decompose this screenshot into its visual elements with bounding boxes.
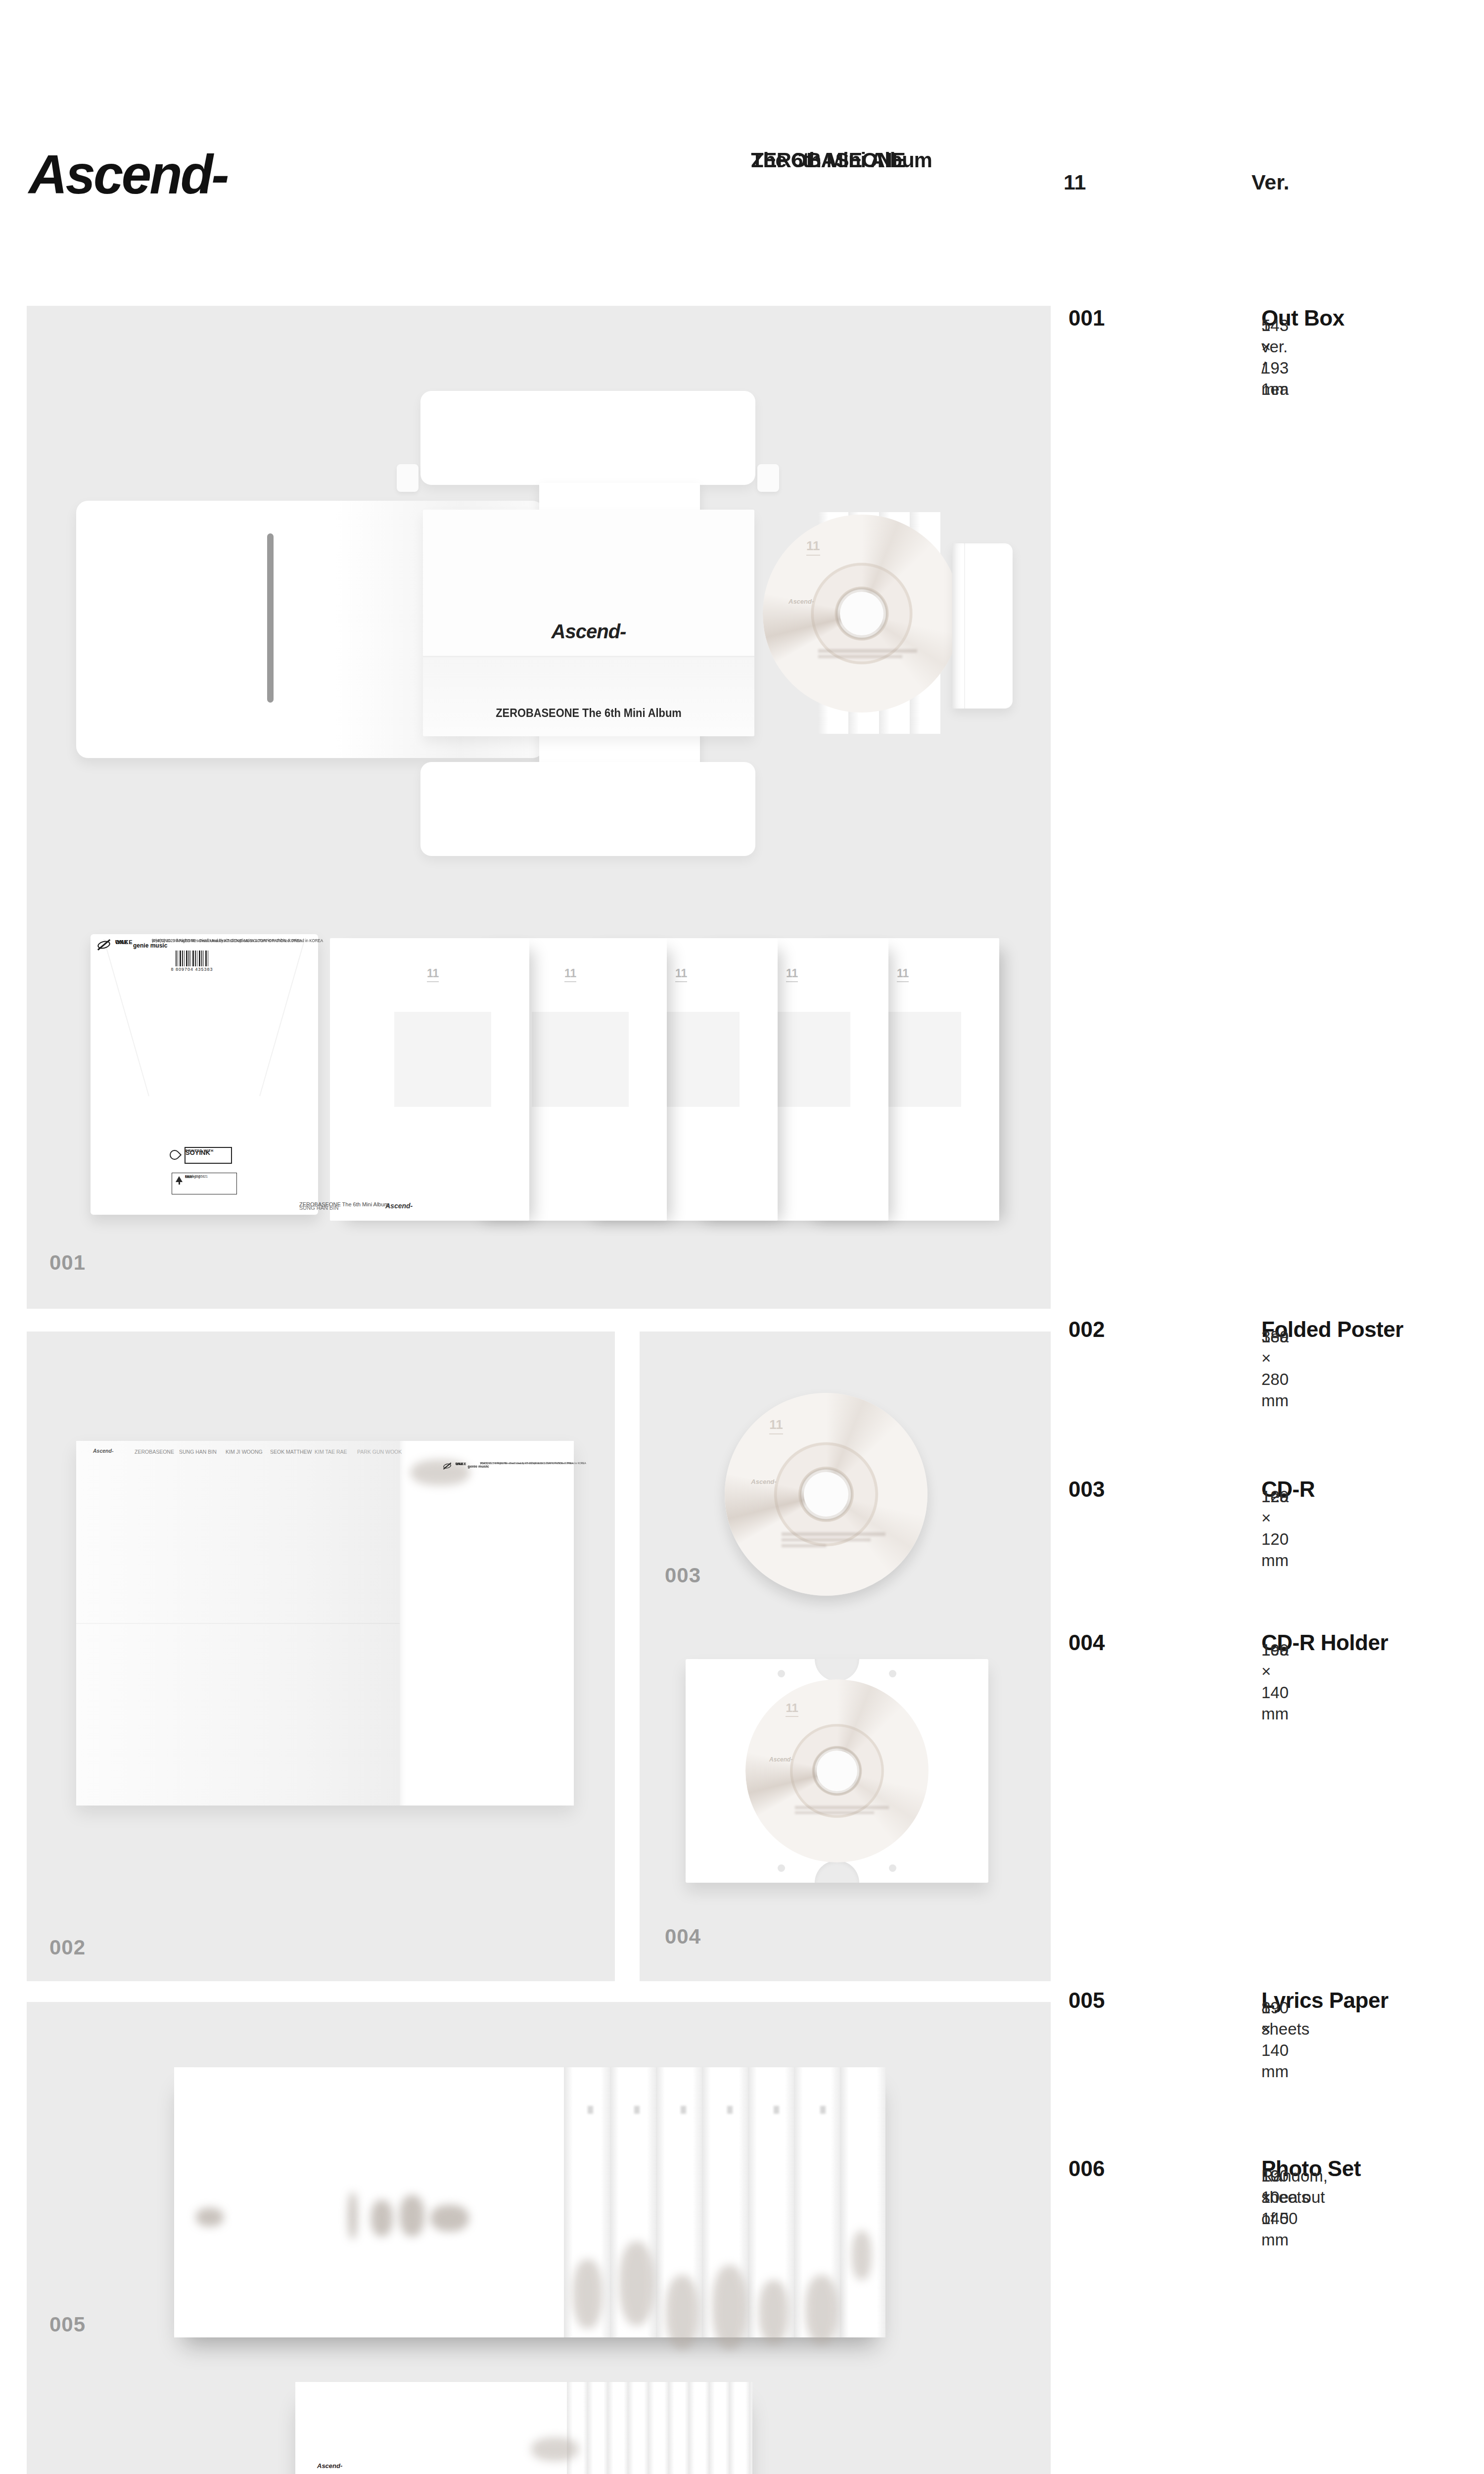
item-note: Random, 10ea out of 50 <box>1261 2165 1328 2229</box>
cover-photo-placeholder <box>394 1012 491 1107</box>
cd-disc-in-holder: 11 Ascend- <box>745 1679 928 1862</box>
poster-imprint: WAKE ONE genie music (P)&(C) 2025 WAKEON… <box>443 1461 597 1485</box>
fold-crease <box>103 939 149 1096</box>
disc-hole <box>817 1751 857 1791</box>
panel-folded-poster: Ascend- ZEROBASEONE SUNG HAN BIN KIM JI … <box>27 1332 615 1981</box>
poster-credit: SEOK MATTHEW <box>270 1449 312 1455</box>
disc-hole <box>804 1472 848 1517</box>
sheet-mark <box>820 2106 826 2114</box>
holder-notch <box>815 1860 859 1883</box>
album-title: The 6th Mini Album <box>751 148 932 171</box>
item-number: 004 <box>1068 1630 1105 1655</box>
disc-print-smudge <box>818 655 902 658</box>
disc-print-smudge <box>795 1811 874 1814</box>
sheet-mark <box>727 2106 733 2114</box>
panel-label: 005 <box>49 2313 86 2336</box>
item-number: 003 <box>1068 1477 1105 1502</box>
box-bottom-flap <box>420 762 755 856</box>
lyrics-smudge <box>400 2195 424 2236</box>
lyrics-smudge <box>196 2208 224 2227</box>
barcode <box>176 951 208 966</box>
poster-right-half <box>400 1441 574 1806</box>
lyrics-smudge <box>371 2200 393 2236</box>
fold-crease <box>259 939 305 1096</box>
folded-poster: Ascend- ZEROBASEONE SUNG HAN BIN KIM JI … <box>76 1441 574 1806</box>
fsc-tree-icon <box>179 1182 180 1185</box>
lyrics-smudge <box>430 2205 469 2232</box>
copyright-line: WARNING : All Rights Reserved. Unauthori… <box>480 1462 586 1465</box>
disc-logo-text: Ascend- <box>751 1478 776 1485</box>
item-qty: 5 ver. / 1ea <box>1261 315 1289 400</box>
cover-version-mark: 11 <box>564 967 576 982</box>
cover-brand-logo: Ascend- <box>385 1202 413 1210</box>
soyink-text: SOYINK <box>185 1149 210 1156</box>
photo-brand-logo: Ascend- <box>317 2462 342 2470</box>
box-tab <box>757 464 779 492</box>
box-tab <box>397 464 418 492</box>
cover-subtitle: ZEROBASEONE The 6th Mini Album <box>431 707 746 720</box>
lyrics-front-sheet <box>174 2067 564 2337</box>
panel-cdr: 11 Ascend- 003 11 Ascend- 004 <box>640 1332 1051 1981</box>
zerobaseone-symbol-icon <box>443 1463 452 1469</box>
box-back-card: WAKE ONE genie music (P)&(C) 2025 WAKEON… <box>91 934 318 1215</box>
item-qty: 1ea <box>1261 1639 1289 1661</box>
version-cover-card: 11 Ascend- ZEROBASEONE The 6th Mini Albu… <box>330 938 529 1221</box>
wakeone-logo-line: ONE <box>115 940 128 945</box>
disc-print-smudge <box>795 1806 889 1809</box>
holder-dot <box>778 1670 785 1677</box>
lyrics-smudge <box>573 2259 603 2329</box>
disc-version-mark: 11 <box>786 1701 798 1717</box>
cd-disc-in-box: 11 Ascend- <box>763 515 961 713</box>
disc-print-smudge <box>782 1538 871 1541</box>
poster-credit: KIM TAE RAE <box>315 1449 347 1455</box>
item-qty: 1ea <box>1261 1326 1289 1347</box>
lyrics-paper-stack <box>174 2067 885 2337</box>
sheet-mark <box>634 2106 640 2114</box>
version-label: Ver. <box>1252 170 1290 194</box>
cd-disc: 11 Ascend- <box>725 1393 927 1596</box>
cover-version-mark: 11 <box>675 967 687 982</box>
disc-logo-text: Ascend- <box>769 1756 792 1763</box>
disc-print-smudge <box>818 649 917 653</box>
disc-version-mark: 11 <box>769 1417 783 1434</box>
lyrics-smudge <box>852 2231 872 2280</box>
poster-credit: PARK GUN WOOK <box>357 1449 402 1455</box>
cover-photo-placeholder <box>532 1012 629 1107</box>
soyink-drop-icon <box>168 1148 182 1162</box>
cover-title: Ascend- <box>423 620 754 643</box>
holder-dot <box>889 1864 896 1872</box>
copyright-line: WARNING : All Rights Reserved. Unauthori… <box>152 938 323 944</box>
album-spec-sheet: Ascend- ZEROBASEONE The 6th Mini Album 1… <box>0 0 1484 2474</box>
sheet-mark <box>681 2106 686 2114</box>
cover-version-mark: 11 <box>786 967 798 982</box>
panel-out-box: 11 Ascend- Ascend- ZEROBASEONE The 6th M… <box>27 306 1051 1309</box>
lyrics-smudge <box>666 2275 698 2349</box>
item-number: 002 <box>1068 1317 1105 1342</box>
poster-credit: KIM JI WOONG <box>226 1449 263 1455</box>
disc-print-smudge <box>782 1544 826 1547</box>
poster-crease <box>76 1623 400 1624</box>
panel-label: 001 <box>49 1251 86 1275</box>
photo-set-stack: Ascend- <box>295 2382 752 2474</box>
lyrics-smudge <box>759 2280 788 2344</box>
holder-notch <box>815 1659 859 1681</box>
item-number: 001 <box>1068 306 1105 331</box>
box-top-flap <box>420 391 755 485</box>
poster-credit: Ascend- <box>93 1448 113 1454</box>
lyrics-smudge <box>619 2241 654 2326</box>
lyrics-smudge <box>712 2265 747 2349</box>
disc-print-smudge <box>782 1532 885 1536</box>
item-qty: 8 sheets <box>1261 1997 1309 2040</box>
lyrics-smudge <box>805 2275 838 2344</box>
version-mark: 11 <box>1064 170 1086 194</box>
box-front-cover: Ascend- ZEROBASEONE The 6th Mini Album <box>423 510 754 736</box>
sheet-mark <box>774 2106 779 2114</box>
poster-credit: SUNG HAN BIN <box>179 1449 217 1455</box>
panel-label: 004 <box>665 1925 701 1949</box>
photo-smudge <box>531 2437 579 2461</box>
item-qty: 1ea <box>1261 1486 1289 1507</box>
photo-front <box>295 2382 567 2474</box>
panel-label: 002 <box>49 1936 86 1959</box>
holder-dot <box>889 1670 896 1677</box>
sheet-mark <box>588 2106 593 2114</box>
barcode-digits: 8 809704 435383 <box>165 967 219 972</box>
panel-label: 003 <box>665 1564 701 1587</box>
poster-credit: ZEROBASEONE <box>135 1449 174 1455</box>
item-number: 006 <box>1068 2156 1105 2181</box>
panel-lyrics-photos: 005 Ascend- 006 Ascend- Ascend- Ascend- <box>27 2002 1051 2474</box>
photo-edges <box>567 2382 752 2474</box>
cover-member-name: SUNG HAN BIN <box>299 1205 338 1211</box>
cover-version-mark: 11 <box>897 967 909 982</box>
disc-version-mark: 11 <box>806 538 820 556</box>
box-thumb-slit <box>267 533 274 703</box>
box-side-pocket <box>952 543 1013 709</box>
wakeone-logo-line: ONE <box>456 1463 464 1466</box>
brand-logo: Ascend- <box>29 143 227 206</box>
soyink-badge: PRINTED WITH SOYINK <box>185 1147 232 1164</box>
cover-version-mark: 11 <box>427 967 439 982</box>
fsc-text: FSC® C155821 <box>185 1175 208 1178</box>
holder-dot <box>778 1864 785 1872</box>
disc-logo-text: Ascend- <box>788 598 814 605</box>
lyrics-smudge <box>348 2192 357 2239</box>
zerobaseone-symbol-icon <box>97 940 111 950</box>
disc-hole <box>840 592 883 635</box>
cdr-holder: 11 Ascend- <box>686 1659 988 1883</box>
item-number: 005 <box>1068 1988 1105 2013</box>
